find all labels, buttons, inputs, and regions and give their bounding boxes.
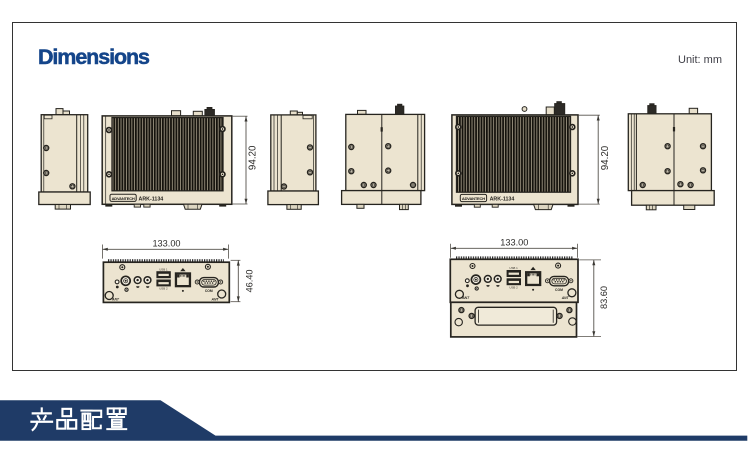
svg-text:ADVANTECH: ADVANTECH — [112, 196, 135, 201]
svg-text:94.20: 94.20 — [600, 145, 611, 170]
svg-text:133.00: 133.00 — [500, 238, 528, 248]
svg-text:ARK-1134: ARK-1134 — [490, 197, 515, 203]
svg-text:83.60: 83.60 — [599, 286, 609, 309]
svg-text:46.40: 46.40 — [245, 270, 255, 293]
svg-text:ADVANTECH: ADVANTECH — [462, 196, 485, 201]
svg-text:94.20: 94.20 — [247, 145, 258, 170]
svg-text:133.00: 133.00 — [152, 238, 180, 248]
svg-text:ARK-1134: ARK-1134 — [139, 196, 164, 202]
